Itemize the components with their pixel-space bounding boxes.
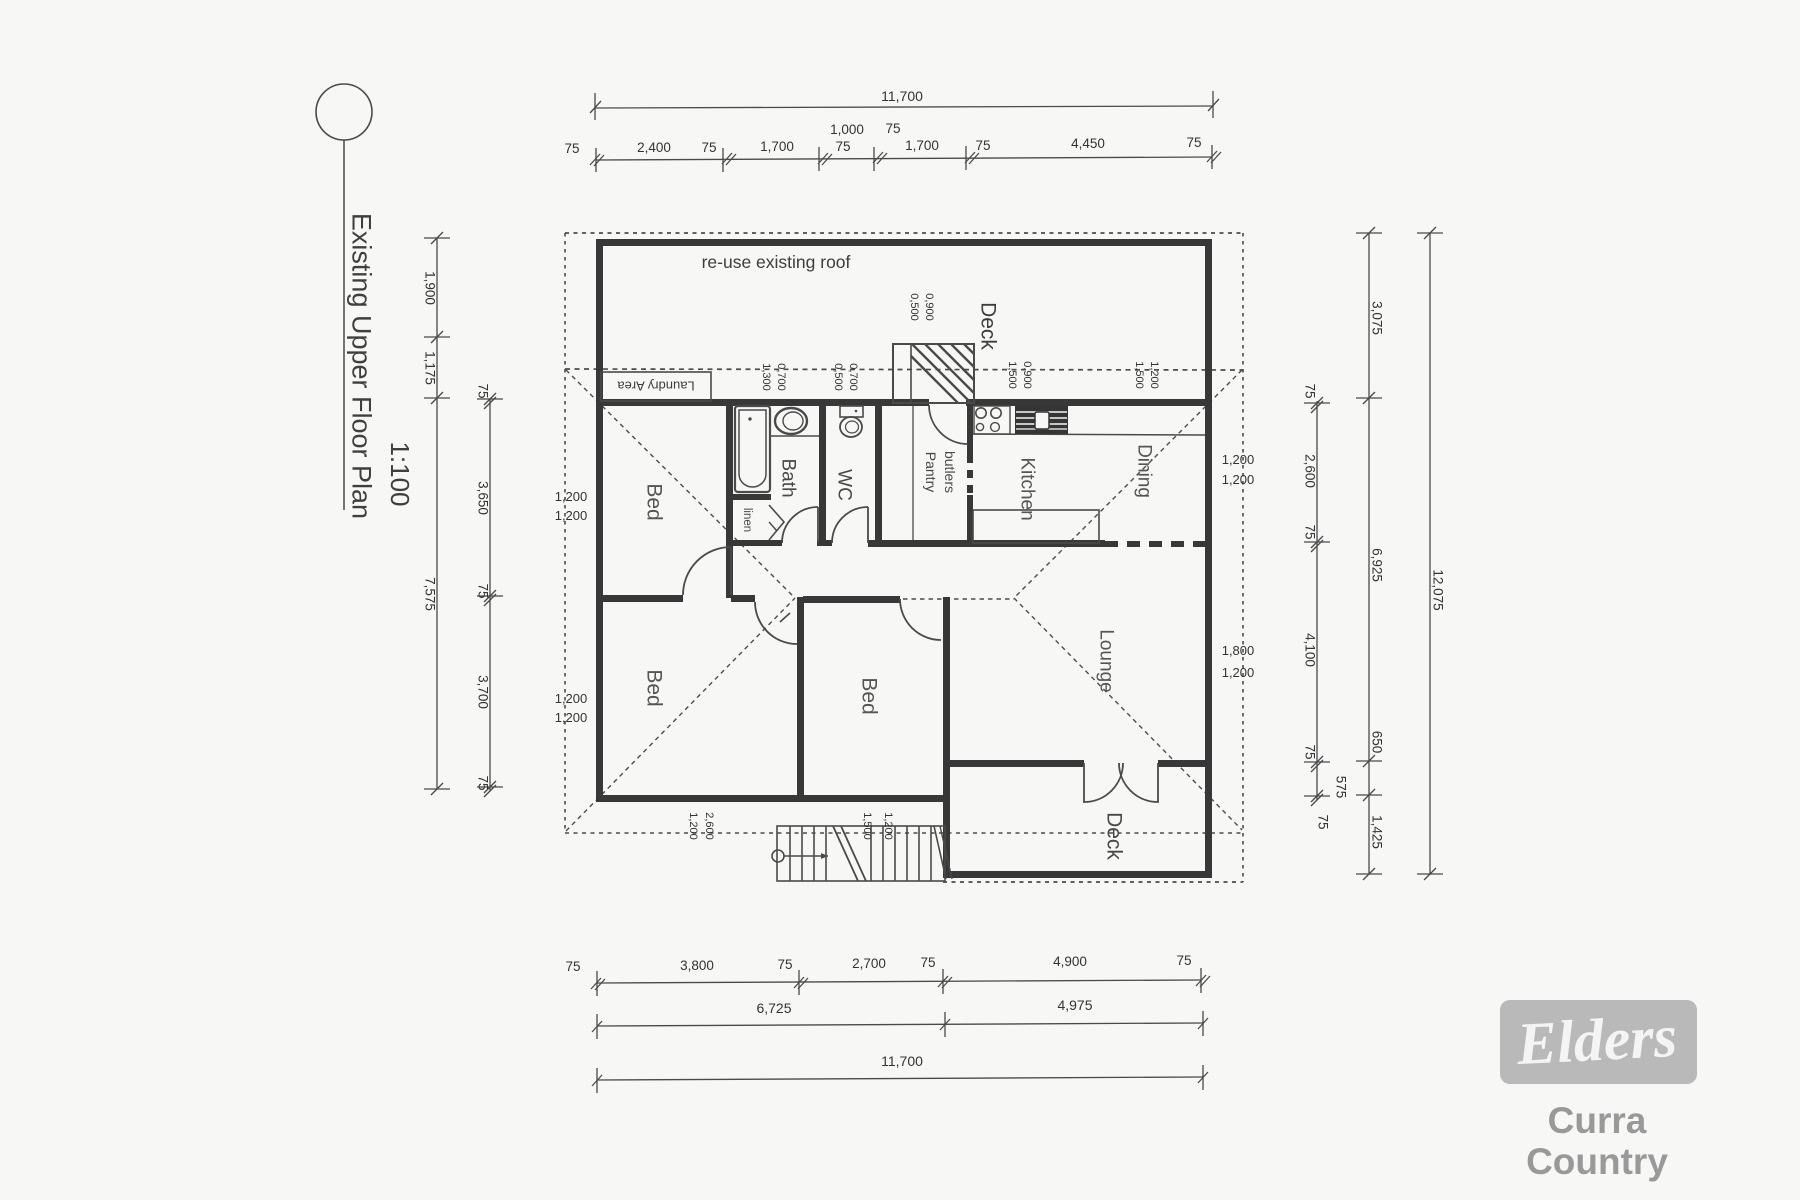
- svg-text:3,800: 3,800: [680, 958, 714, 973]
- svg-text:3,650: 3,650: [475, 481, 490, 515]
- svg-text:575: 575: [1333, 776, 1348, 799]
- svg-text:Kitchen: Kitchen: [1016, 457, 1037, 520]
- svg-text:1,500: 1,500: [861, 812, 873, 840]
- svg-text:Bed: Bed: [858, 677, 881, 714]
- svg-text:75: 75: [565, 959, 580, 974]
- svg-text:WC: WC: [833, 469, 854, 501]
- svg-text:4,450: 4,450: [1071, 136, 1105, 151]
- svg-text:75: 75: [1186, 135, 1201, 150]
- svg-text:Laundry Area: Laundry Area: [617, 378, 695, 393]
- svg-text:75: 75: [835, 139, 850, 154]
- svg-text:1,200: 1,200: [1222, 452, 1255, 467]
- svg-text:75: 75: [475, 583, 490, 598]
- svg-text:Dining: Dining: [1133, 444, 1154, 498]
- svg-text:6,725: 6,725: [756, 1000, 791, 1016]
- svg-text:75: 75: [777, 957, 792, 972]
- svg-text:75: 75: [975, 138, 990, 153]
- svg-text:75: 75: [1302, 744, 1317, 759]
- svg-text:Bed: Bed: [643, 669, 666, 706]
- svg-text:2,700: 2,700: [852, 956, 886, 971]
- svg-text:Bed: Bed: [643, 483, 666, 520]
- svg-text:1,175: 1,175: [422, 351, 437, 385]
- svg-text:1,800: 1,800: [1222, 643, 1255, 658]
- svg-text:butlers: butlers: [942, 451, 958, 493]
- svg-text:Lounge: Lounge: [1095, 629, 1116, 692]
- svg-text:Elders: Elders: [1514, 1003, 1678, 1077]
- svg-text:75: 75: [1302, 524, 1317, 539]
- svg-text:1,200: 1,200: [555, 710, 588, 725]
- svg-text:6,925: 6,925: [1369, 548, 1384, 582]
- svg-text:3,075: 3,075: [1369, 301, 1384, 335]
- svg-text:1,700: 1,700: [760, 139, 794, 154]
- svg-text:0,500: 0,500: [908, 293, 920, 321]
- svg-text:4,900: 4,900: [1053, 954, 1087, 969]
- svg-text:1,200: 1,200: [555, 489, 588, 504]
- svg-text:2,600: 2,600: [703, 812, 715, 840]
- svg-text:1,300: 1,300: [760, 363, 772, 391]
- svg-text:re-use existing roof: re-use existing roof: [702, 252, 851, 272]
- svg-text:75: 75: [920, 955, 935, 970]
- svg-text:1,200: 1,200: [555, 691, 588, 706]
- svg-text:4,975: 4,975: [1057, 997, 1092, 1013]
- svg-text:12,075: 12,075: [1430, 569, 1445, 610]
- svg-text:1,000: 1,000: [830, 122, 864, 137]
- svg-text:1,900: 1,900: [422, 271, 437, 305]
- svg-text:1,200: 1,200: [1222, 472, 1255, 487]
- svg-text:75: 75: [885, 121, 900, 136]
- svg-text:Curra: Curra: [1548, 1100, 1647, 1141]
- svg-text:1,425: 1,425: [1369, 815, 1384, 849]
- svg-text:650: 650: [1369, 731, 1384, 754]
- svg-text:1,200: 1,200: [1148, 361, 1160, 389]
- svg-text:Deck: Deck: [977, 302, 1000, 350]
- svg-text:2,600: 2,600: [1302, 454, 1317, 488]
- svg-text:1:100: 1:100: [385, 441, 415, 506]
- svg-text:75: 75: [1176, 953, 1191, 968]
- svg-text:Bath: Bath: [777, 458, 798, 497]
- svg-text:4,100: 4,100: [1302, 633, 1317, 667]
- svg-text:3,700: 3,700: [475, 675, 490, 709]
- svg-text:7,575: 7,575: [422, 577, 437, 611]
- svg-text:1,200: 1,200: [555, 508, 588, 523]
- svg-text:0,700: 0,700: [847, 363, 859, 391]
- svg-text:linen: linen: [741, 508, 753, 532]
- svg-text:75: 75: [701, 140, 716, 155]
- svg-text:0,700: 0,700: [775, 363, 787, 391]
- svg-text:1,200: 1,200: [687, 812, 699, 840]
- svg-text:75: 75: [475, 383, 490, 398]
- svg-text:Country: Country: [1526, 1141, 1668, 1182]
- svg-text:0,900: 0,900: [1021, 361, 1033, 389]
- svg-text:75: 75: [475, 775, 490, 790]
- svg-text:0,500: 0,500: [832, 363, 844, 391]
- svg-text:1,700: 1,700: [905, 138, 939, 153]
- svg-text:75: 75: [1315, 814, 1330, 829]
- svg-text:1,500: 1,500: [1006, 361, 1018, 389]
- svg-text:1,200: 1,200: [882, 812, 894, 840]
- svg-text:11,700: 11,700: [881, 1053, 923, 1069]
- svg-text:1,200: 1,200: [1222, 665, 1255, 680]
- svg-text:75: 75: [564, 141, 579, 156]
- svg-text:Pantry: Pantry: [923, 452, 939, 492]
- svg-text:1,500: 1,500: [1133, 361, 1145, 389]
- svg-text:0,900: 0,900: [923, 293, 935, 321]
- svg-text:11,700: 11,700: [881, 88, 923, 104]
- svg-text:75: 75: [1302, 383, 1317, 398]
- svg-text:Deck: Deck: [1103, 812, 1126, 860]
- svg-text:2,400: 2,400: [637, 140, 671, 155]
- svg-text:Existing Upper Floor Plan: Existing Upper Floor Plan: [347, 213, 377, 519]
